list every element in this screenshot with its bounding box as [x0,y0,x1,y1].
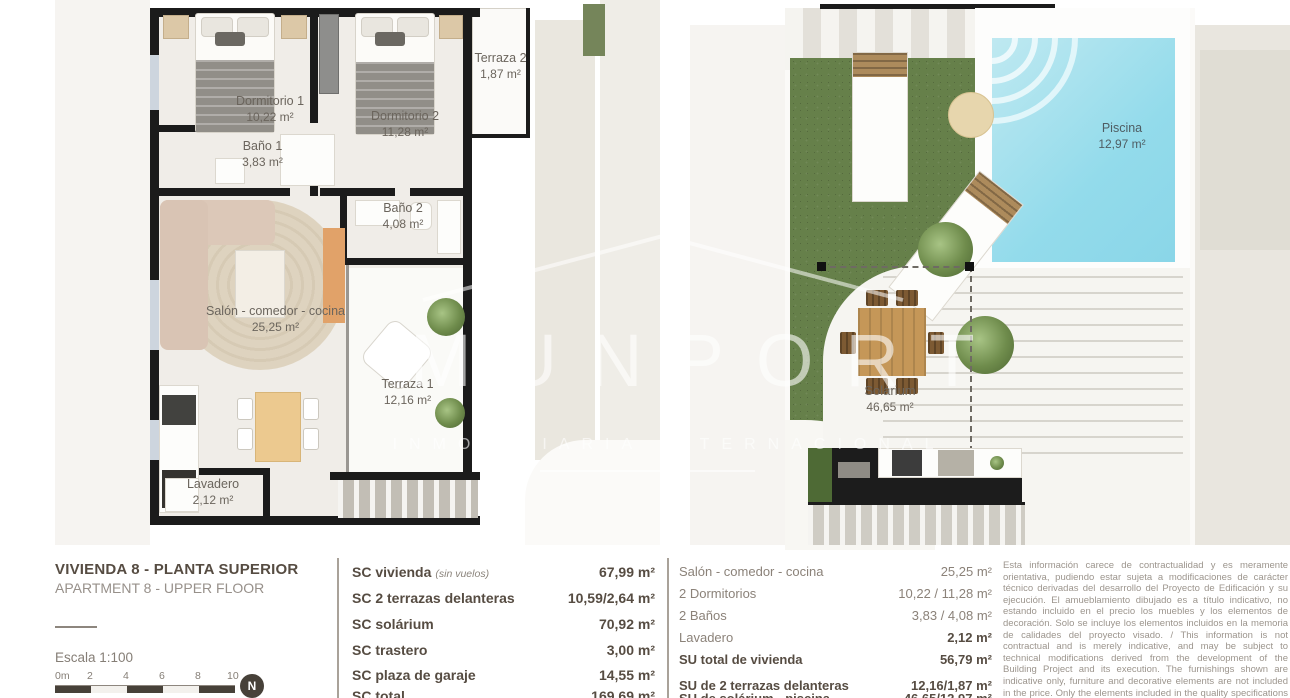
chair [928,332,944,354]
su-label: Salón - comedor - cocina [679,564,824,579]
sc-value: 10,59/2,64 m² [568,590,655,606]
wall [263,468,270,522]
boundary-dashed-line [970,266,972,462]
su-label: SU de solárium - piscina [679,691,830,698]
neighbor-wash-left [55,0,150,545]
wall [330,472,480,480]
staircase [338,480,478,518]
wardrobe [319,14,339,94]
sc-value: 3,00 m² [607,642,655,658]
scale-tick: 0m [55,670,70,682]
neighbor-terrace-right [1200,50,1290,250]
window [150,55,159,110]
sc-label: SC trastero [352,642,427,658]
chair [237,398,253,420]
sc-label: SC vivienda [352,564,431,580]
su-table-row: Lavadero 2,12 m² [679,630,992,645]
su-label: 2 Baños [679,608,727,623]
su-table-row: 2 Baños 3,83 / 4,08 m² [679,608,992,623]
scale-label: Escala 1:100 [55,650,133,665]
sc-value: 70,92 m² [599,616,655,632]
legal-disclaimer: Esta información carece de contractualid… [1003,560,1288,698]
scale-tick: 2 [87,670,93,682]
plant [427,298,465,336]
room-label-dormitorio-1: Dormitorio 1 10,22 m² [195,93,345,125]
sc-value: 14,55 m² [599,667,655,683]
title-divider-line [55,626,97,628]
boundary-marker [965,262,974,271]
room-label-terraza-2: Terraza 2 1,87 m² [453,50,548,82]
su-label: 2 Dormitorios [679,586,756,601]
su-value: 46,65/12,97 m² [904,691,992,698]
accent-cushion [375,32,405,46]
sc-value: 67,99 m² [599,564,655,580]
scale-bar: 0m 2 4 6 8 10 N [55,670,295,698]
nightstand [163,15,189,39]
su-value: 2,12 m² [947,630,992,645]
su-table-row: Salón - comedor - cocina 25,25 m² [679,564,992,579]
room-label-solarium: Solárium 46,65 m² [830,383,950,415]
plan-sheet: Dormitorio 1 10,22 m² Dormitorio 2 11,28… [0,0,1290,698]
su-value: 10,22 / 11,28 m² [898,586,992,601]
nightstand [281,15,307,39]
room-label-lavadero: Lavadero 2,12 m² [163,476,263,508]
room-label-bano-2: Baño 2 4,08 m² [348,200,458,232]
dining-table [858,308,926,376]
pool-step [992,38,1078,124]
dining-table [255,392,301,462]
kitchen-counter-bar [832,478,1022,502]
side-table [948,92,994,138]
window [150,280,159,350]
sc-note: (sin vuelos) [435,568,489,580]
room-label-terraza-1: Terraza 1 12,16 m² [360,376,455,408]
sc-label: SC plaza de garaje [352,667,476,683]
sc-total-value: 169,69 m² [591,688,655,698]
su-value: 3,83 / 4,08 m² [912,608,992,623]
north-compass-icon: N [240,674,264,698]
scale-tick: 10 [227,670,239,682]
neighbor-path [525,440,660,545]
su-label: SU total de vivienda [679,652,803,667]
chair [840,332,856,354]
sc-total-label: SC total [352,688,405,698]
sun-lounger [852,52,908,202]
neighbor-area-right-1 [535,20,595,460]
su-table-row: 2 Dormitorios 10,22 / 11,28 m² [679,586,992,601]
cutting-board [938,450,974,476]
wall [340,258,472,265]
wall [150,188,290,196]
chair [866,290,888,306]
su-table-row: SU de solárium - piscina 46,65/12,97 m² [679,691,992,698]
nightstand [439,15,463,39]
stove [162,395,196,425]
su-table-row: SU total de vivienda 56,79 m² [679,652,992,667]
column-divider [337,558,339,698]
chair [237,428,253,450]
su-label: Lavadero [679,630,733,645]
su-value: 25,25 m² [941,564,992,579]
floor-plan-apartment: Dormitorio 1 10,22 m² Dormitorio 2 11,28… [55,0,660,545]
room-label-piscina: Piscina 12,97 m² [1062,120,1175,152]
hedge [583,4,605,56]
window [150,420,159,460]
sc-table-row: SC plaza de garaje 14,55 m² [352,667,655,683]
scale-segment [199,686,235,693]
sc-label: SC 2 terrazas delanteras [352,590,515,606]
floor-plan-solarium: Piscina 12,97 m² Solárium 46,65 m² [680,0,1290,545]
sc-total-row: SC total 169,69 m² [352,688,655,698]
scale-segment [127,686,163,693]
room-label-bano-1: Baño 1 3,83 m² [205,138,320,170]
chair [896,290,918,306]
sc-table-row: SC solárium 70,92 m² [352,616,655,632]
scale-segment [55,686,91,693]
sc-table-row: SC 2 terrazas delanteras 10,59/2,64 m² [352,590,655,606]
boundary-dashed-line [830,266,970,268]
sc-table-row: SC vivienda(sin vuelos) 67,99 m² [352,564,655,580]
scale-tick: 6 [159,670,165,682]
scale-tick: 8 [195,670,201,682]
plant [956,316,1014,374]
column-divider [667,558,669,698]
wall [472,134,530,138]
chair [303,398,319,420]
sheet-title: VIVIENDA 8 - PLANTA SUPERIOR [55,561,345,578]
plant [990,456,1004,470]
swimming-pool: Piscina 12,97 m² [992,38,1175,262]
room-label-dormitorio-2: Dormitorio 2 11,28 m² [330,108,480,140]
sc-label: SC solárium [352,616,434,632]
room-label-salon: Salón - comedor - cocina 25,25 m² [173,303,378,335]
wall [410,188,472,196]
chair [303,428,319,450]
neighbor-wash-left [690,25,785,545]
sheet-subtitle: APARTMENT 8 - UPPER FLOOR [55,580,345,596]
sc-table-row: SC trastero 3,00 m² [352,642,655,658]
boundary-marker [817,262,826,271]
wall [320,188,395,196]
grill [892,450,922,476]
scale-tick: 4 [123,670,129,682]
staircase [808,502,1025,545]
lounger-headrest [853,53,907,77]
accent-cushion [215,32,245,46]
su-value: 56,79 m² [940,652,992,667]
